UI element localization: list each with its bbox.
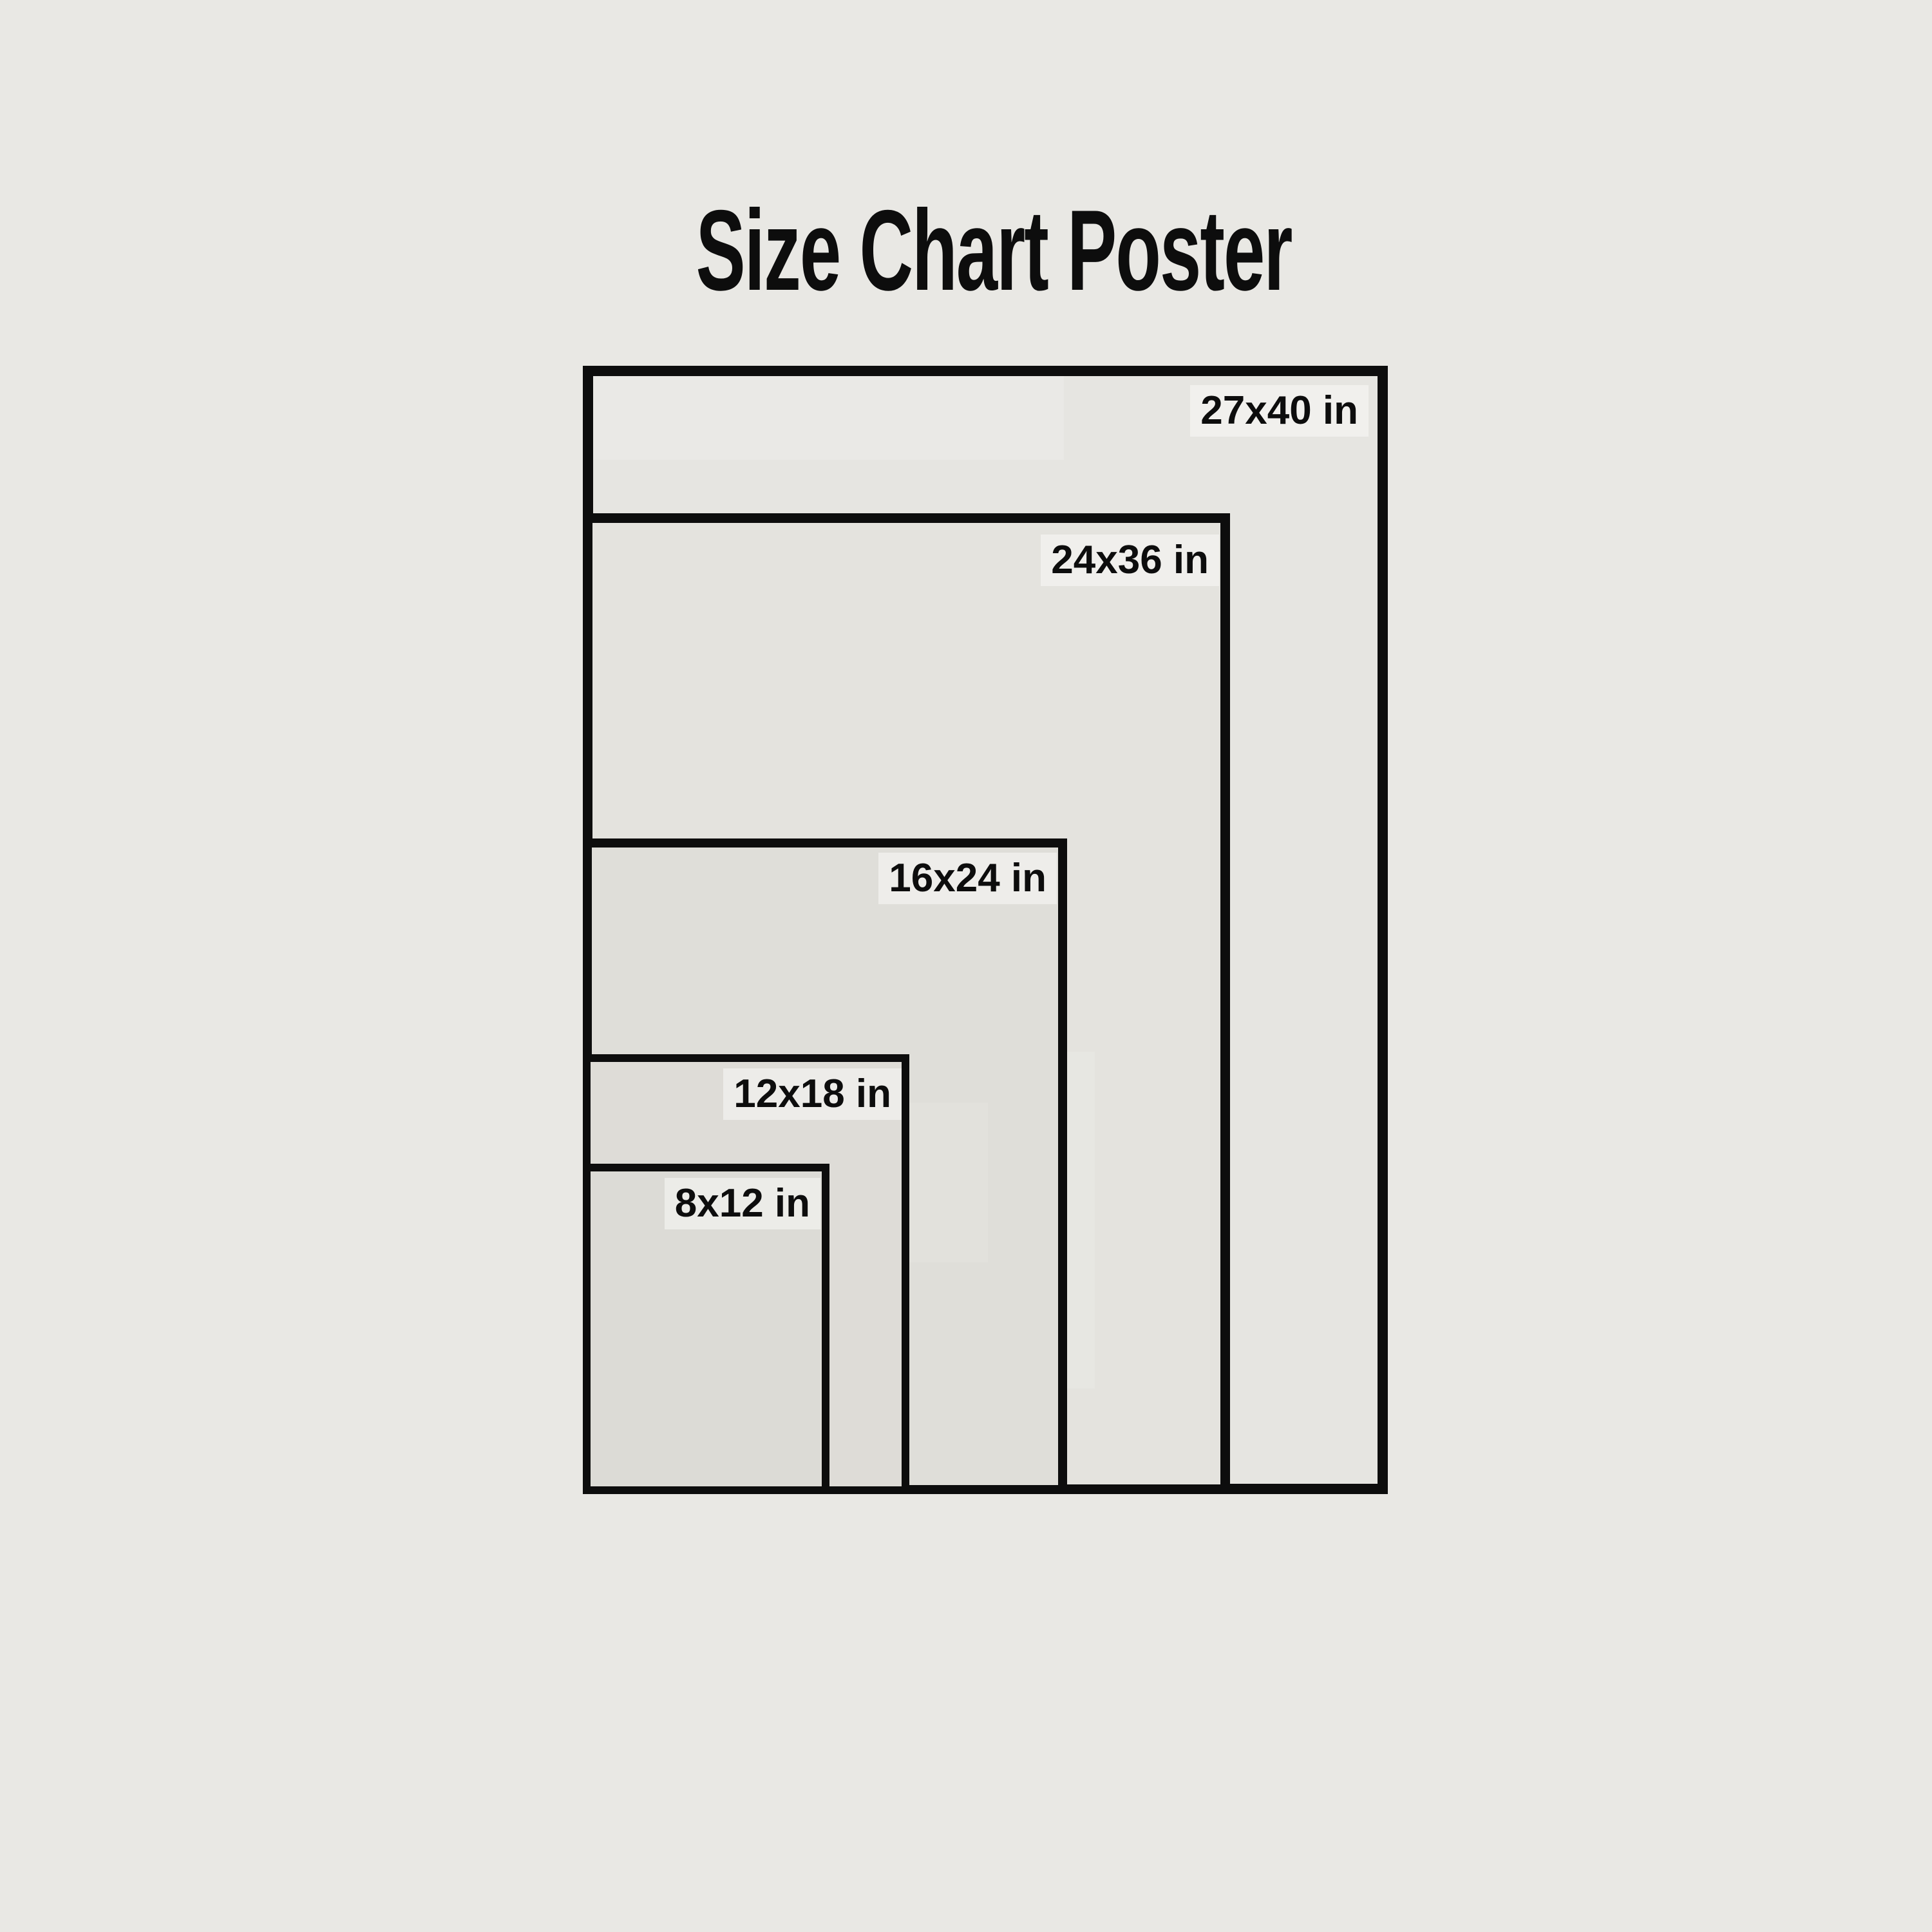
page-title-text: Size Chart Poster xyxy=(696,193,1292,308)
tone-patch xyxy=(593,376,1064,460)
size-chart: Size Chart Poster 27x40 in 24x36 in 16x2… xyxy=(0,0,1932,1932)
size-rect-8x12: 8x12 in xyxy=(583,1164,829,1494)
page-title: Size Chart Poster xyxy=(536,193,1452,308)
size-label-24x36: 24x36 in xyxy=(1041,535,1219,586)
size-label-27x40: 27x40 in xyxy=(1190,385,1368,437)
size-label-12x18: 12x18 in xyxy=(723,1068,902,1120)
size-label-16x24: 16x24 in xyxy=(878,853,1057,904)
size-label-8x12: 8x12 in xyxy=(665,1178,820,1229)
